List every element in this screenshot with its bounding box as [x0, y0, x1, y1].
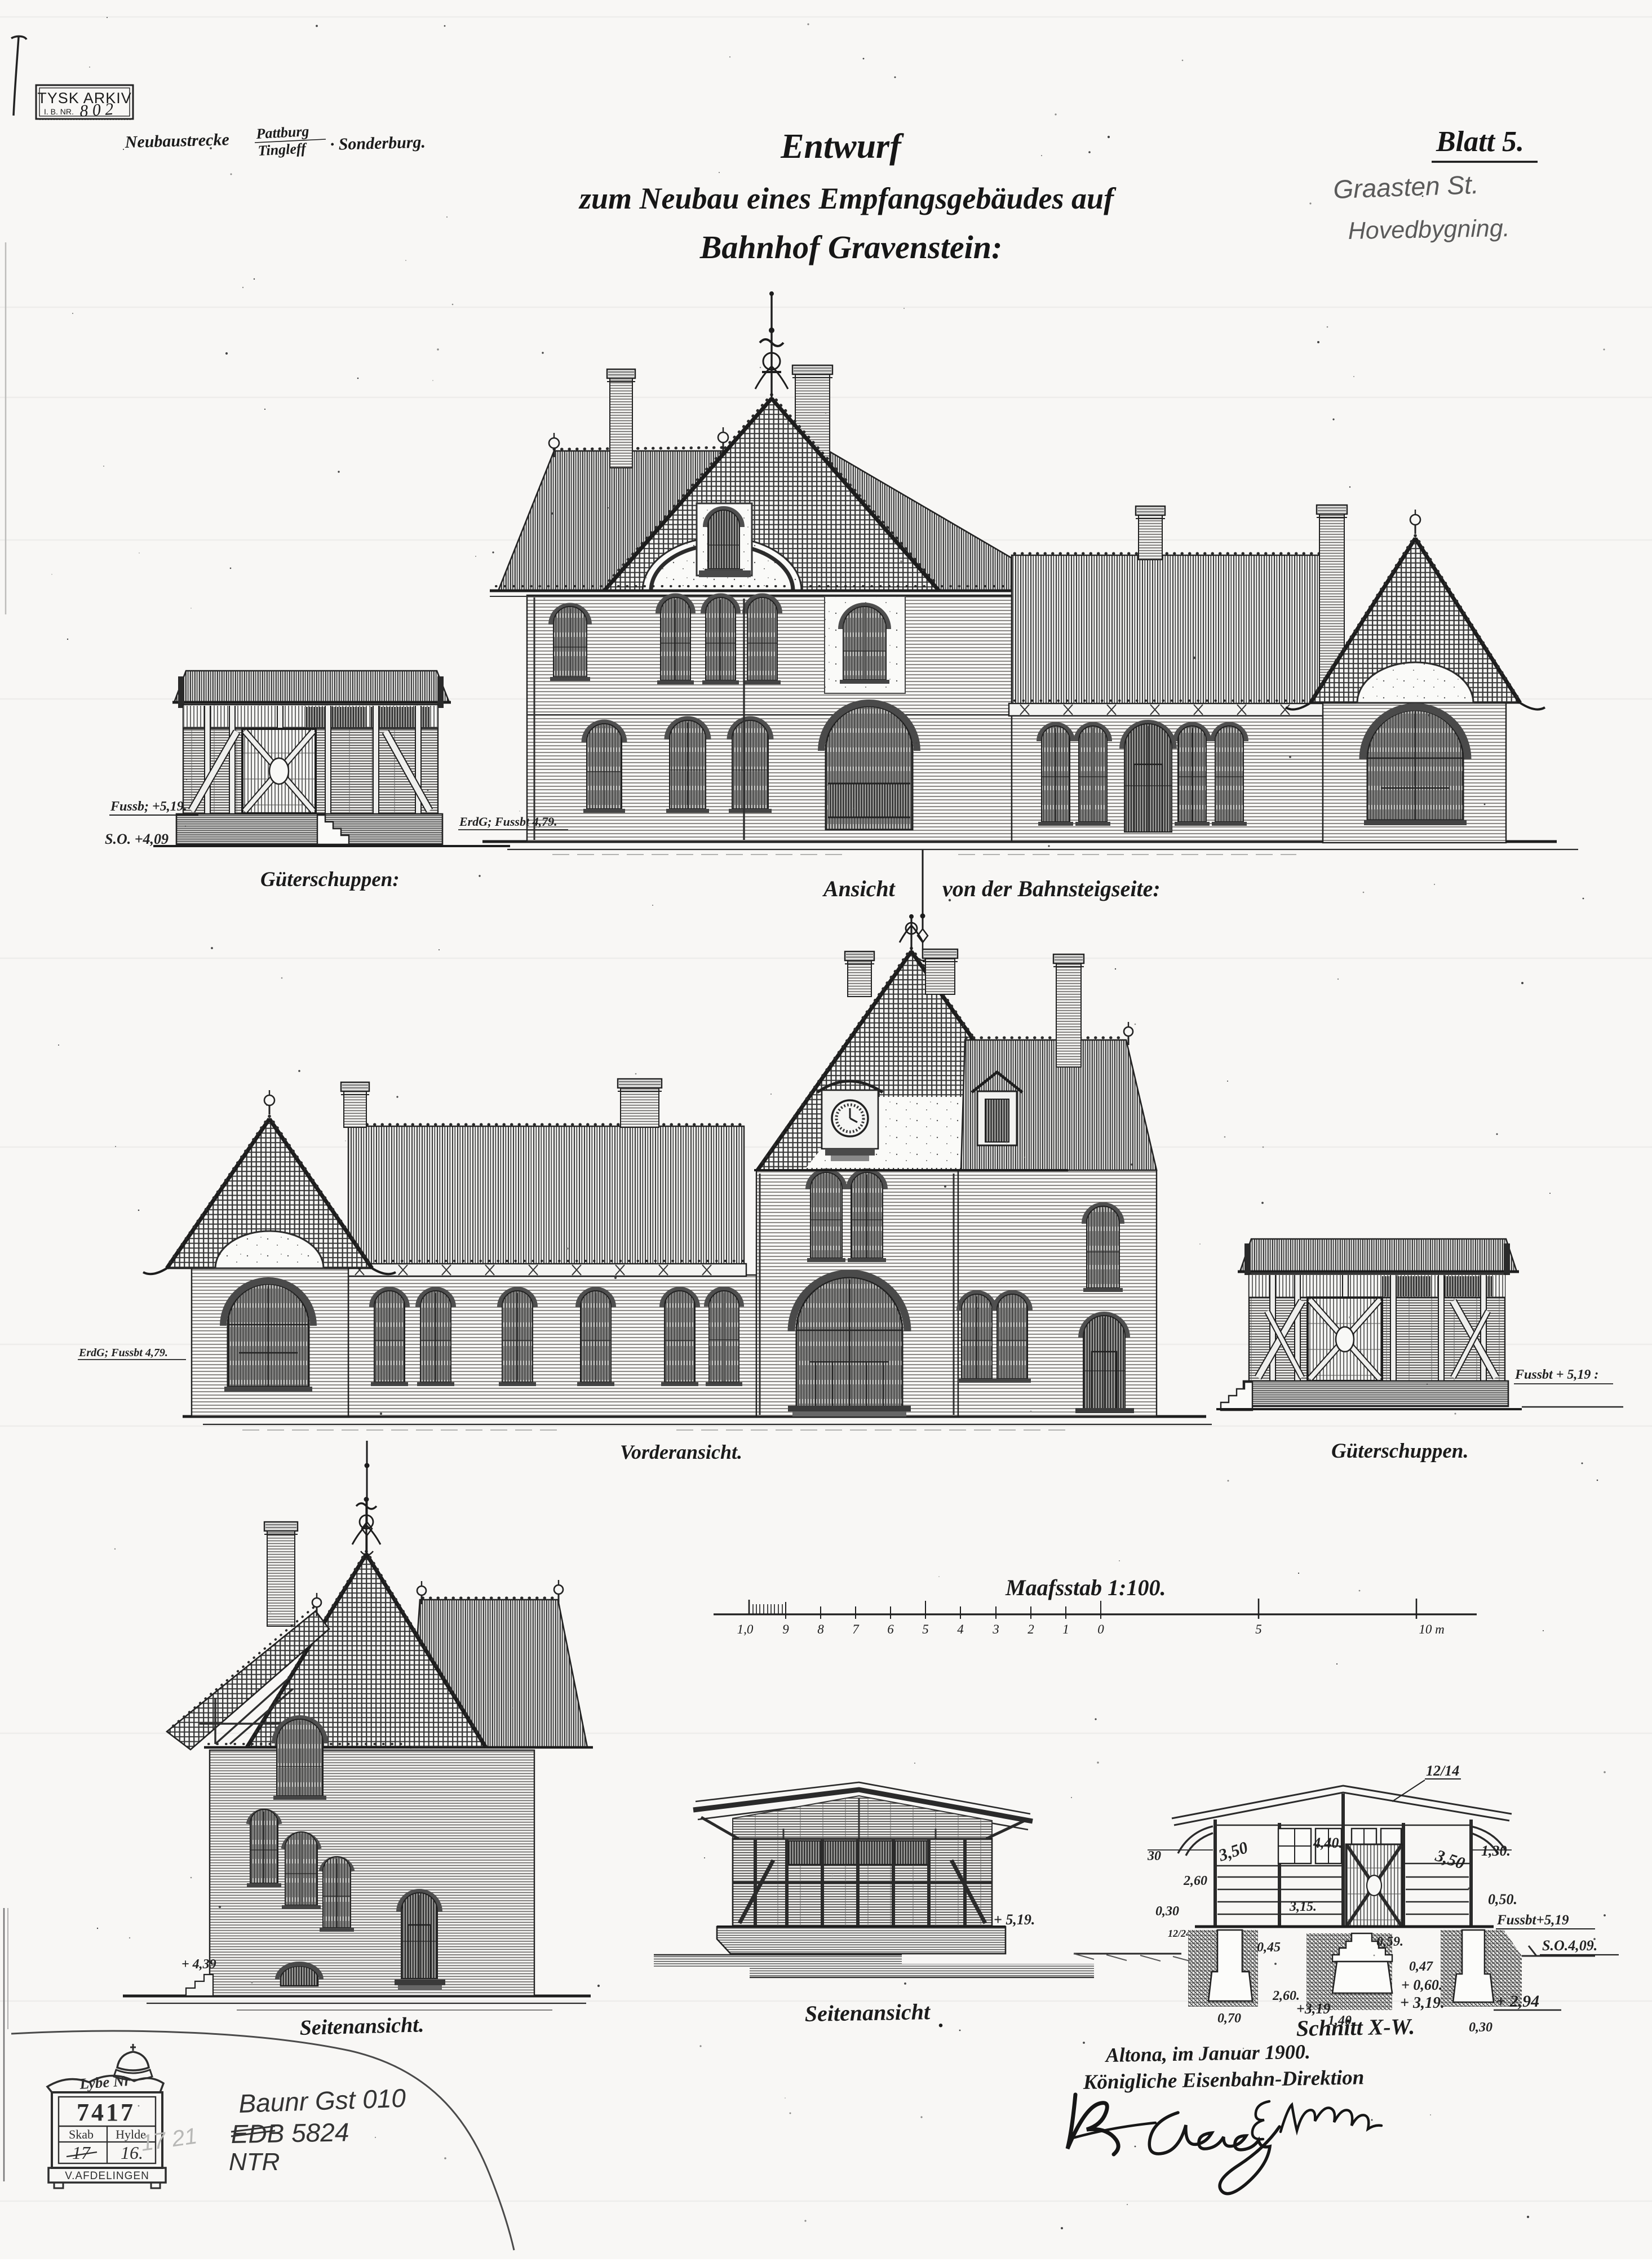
svg-text:1,0: 1,0	[737, 1622, 754, 1636]
svg-text:Bahnhof Gravenstein:: Bahnhof Gravenstein:	[699, 229, 1003, 265]
svg-text:0,30: 0,30	[1469, 2020, 1492, 2035]
svg-text:NTR: NTR	[229, 2148, 280, 2176]
svg-text:8: 8	[817, 1622, 824, 1636]
svg-text:von der Bahnsteigseite:: von der Bahnsteigseite:	[942, 876, 1161, 901]
svg-text:Pattburg: Pattburg	[255, 123, 309, 142]
svg-text:zum Neubau eines Empfangsgebäu: zum Neubau eines Empfangsgebäudes auf	[578, 182, 1117, 215]
svg-text:Güterschuppen:: Güterschuppen:	[260, 868, 400, 891]
svg-text:Königliche Eisenbahn-Direktion: Königliche Eisenbahn-Direktion	[1082, 2066, 1364, 2094]
svg-text:0,45: 0,45	[1257, 1940, 1281, 1955]
svg-text:3: 3	[992, 1622, 999, 1636]
svg-text:Maafsstab 1:100.: Maafsstab 1:100.	[1005, 1575, 1166, 1600]
svg-text:Fussbt + 5,19 :: Fussbt + 5,19 :	[1514, 1367, 1598, 1382]
svg-text:0,50.: 0,50.	[1488, 1891, 1517, 1907]
svg-text:+ 5,19.: + 5,19.	[994, 1911, 1035, 1928]
svg-text:0,47: 0,47	[1409, 1959, 1433, 1974]
svg-text:+ 4,39: + 4,39	[181, 1957, 216, 1972]
svg-text:30: 30	[1147, 1849, 1161, 1863]
svg-text:S.O.4,09.: S.O.4,09.	[1542, 1937, 1597, 1954]
svg-text:5: 5	[1255, 1622, 1262, 1636]
svg-text:2: 2	[1027, 1622, 1034, 1636]
svg-text:+ 0,60.: + 0,60.	[1401, 1977, 1442, 1993]
svg-text:Neubaustrecke: Neubaustrecke	[124, 130, 229, 152]
svg-text:Hovedbygning.: Hovedbygning.	[1348, 215, 1510, 245]
svg-text:17: 17	[72, 2143, 91, 2163]
svg-text:Güterschuppen.: Güterschuppen.	[1331, 1440, 1469, 1463]
svg-text:12/24: 12/24	[1168, 1928, 1191, 1939]
svg-text:7417: 7417	[77, 2099, 135, 2126]
svg-text:EDB 5824: EDB 5824	[231, 2117, 349, 2149]
svg-text:9: 9	[782, 1622, 789, 1636]
svg-text:· Sonderburg.: · Sonderburg.	[330, 133, 426, 154]
svg-text:1: 1	[1062, 1622, 1069, 1636]
svg-text:Vorderansicht.: Vorderansicht.	[620, 1441, 742, 1463]
svg-text:Tingleff: Tingleff	[258, 140, 308, 159]
svg-text:Lybe Nr: Lybe Nr	[78, 2072, 131, 2092]
svg-text:4,40.: 4,40.	[1313, 1835, 1343, 1851]
svg-text:I. B. NR.: I. B. NR.	[44, 107, 74, 116]
svg-text:7: 7	[852, 1622, 860, 1636]
svg-text:5: 5	[922, 1622, 929, 1636]
svg-text:0,30: 0,30	[1155, 1904, 1179, 1919]
svg-text:Fussbt+5,19: Fussbt+5,19	[1496, 1913, 1569, 1928]
svg-text:Baunr Gst 010: Baunr Gst 010	[238, 2083, 407, 2118]
svg-text:.: .	[938, 2007, 944, 2032]
svg-text:0: 0	[1097, 1622, 1104, 1636]
svg-text:+ 3,19.: + 3,19.	[1400, 1994, 1445, 2012]
svg-text:16.: 16.	[121, 2143, 143, 2163]
svg-text:Seitenansicht.: Seitenansicht.	[299, 2013, 424, 2040]
svg-text:Ansicht: Ansicht	[822, 876, 896, 901]
svg-text:+3,19: +3,19	[1296, 2000, 1330, 2017]
svg-text:6: 6	[887, 1622, 894, 1636]
svg-text:0,70: 0,70	[1217, 2011, 1241, 2026]
svg-text:Schnitt X-W.: Schnitt X-W.	[1296, 2013, 1415, 2041]
svg-text:3,15.: 3,15.	[1289, 1900, 1317, 1914]
svg-text:V.AFDELINGEN: V.AFDELINGEN	[65, 2170, 149, 2182]
svg-text:2,60: 2,60	[1183, 1874, 1207, 1888]
svg-text:ErdG; Fussbt 4,79.: ErdG; Fussbt 4,79.	[78, 1347, 168, 1359]
svg-text:Skab: Skab	[69, 2127, 94, 2141]
svg-text:Fussb; +5,19.: Fussb; +5,19.	[110, 799, 187, 814]
svg-text:0,59.: 0,59.	[1376, 1935, 1403, 1949]
svg-text:Entwurf: Entwurf	[780, 127, 904, 166]
svg-text:ErdG; Fussbt 4,79.: ErdG; Fussbt 4,79.	[459, 815, 557, 829]
svg-text:8 0 2: 8 0 2	[79, 100, 114, 121]
svg-text:Altona, im Januar 1900.: Altona, im Januar 1900.	[1104, 2040, 1310, 2066]
svg-text:Seitenansicht: Seitenansicht	[804, 1999, 931, 2026]
svg-text:Graasten St.: Graasten St.	[1333, 170, 1480, 204]
svg-text:10 m: 10 m	[1419, 1622, 1444, 1636]
svg-text:12/14: 12/14	[1426, 1763, 1459, 1779]
svg-text:S.O. +4,09: S.O. +4,09	[105, 831, 169, 847]
svg-text:2,60.: 2,60.	[1272, 1989, 1300, 2003]
svg-text:4: 4	[957, 1622, 964, 1636]
svg-text:Blatt 5.: Blatt 5.	[1436, 126, 1524, 158]
svg-text:+ 2,94: + 2,94	[1496, 1992, 1539, 2011]
svg-text:1,30.: 1,30.	[1481, 1843, 1511, 1859]
